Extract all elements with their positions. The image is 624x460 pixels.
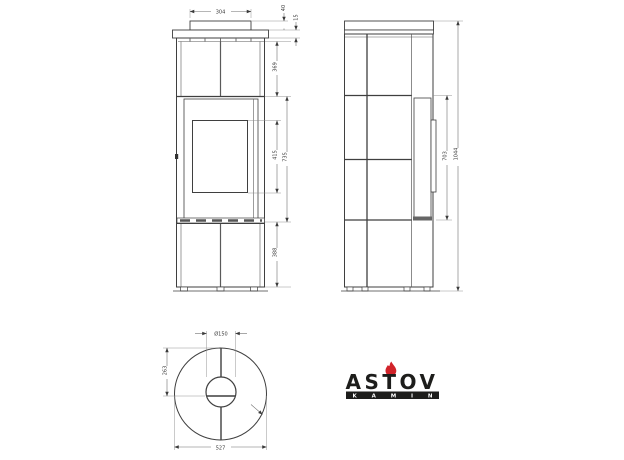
dim-door-section: 735 — [283, 152, 289, 162]
front-top-slab — [190, 21, 251, 30]
dim-window-height: 415 — [273, 150, 279, 160]
top-flue-circle — [206, 377, 236, 407]
side-door-handle — [431, 120, 436, 192]
side-door-profile — [414, 98, 431, 219]
dim-flue-offset: 263 — [163, 366, 169, 376]
side-view: 703 1044 — [341, 21, 463, 291]
side-feet — [341, 287, 440, 291]
drawing-canvas: 304 40 15 369 415 735 388 — [0, 0, 624, 460]
top-view: Ø150 263 527 — [163, 331, 267, 452]
dim-total-height: 1044 — [454, 148, 460, 161]
dim-slab-height: 40 — [281, 5, 287, 11]
front-door-hinge — [175, 154, 178, 159]
dim-upper-section: 369 — [273, 62, 279, 72]
dim-lower-section: 388 — [273, 248, 279, 258]
stove-drawing-svg: 304 40 15 369 415 735 388 — [0, 0, 624, 460]
side-top-slab — [345, 21, 434, 30]
dim-flue-diameter: Ø150 — [214, 331, 227, 338]
front-door-window — [193, 121, 248, 193]
dim-top-width: 304 — [216, 10, 226, 16]
side-vent-band — [413, 217, 432, 221]
brand-logo: ASTOV KAMIN — [346, 362, 439, 400]
side-dimensions: 703 1044 — [433, 21, 463, 291]
brand-name: ASTOV — [346, 370, 439, 394]
dim-outer-diameter: 527 — [216, 446, 226, 452]
front-vent-band — [177, 218, 265, 224]
front-feet — [173, 287, 268, 291]
side-top-plate — [345, 30, 434, 34]
dim-plate-thickness: 15 — [294, 14, 300, 20]
dim-door-height: 703 — [443, 151, 449, 161]
front-view: 304 40 15 369 415 735 388 — [173, 5, 301, 291]
front-top-plate — [173, 30, 269, 38]
